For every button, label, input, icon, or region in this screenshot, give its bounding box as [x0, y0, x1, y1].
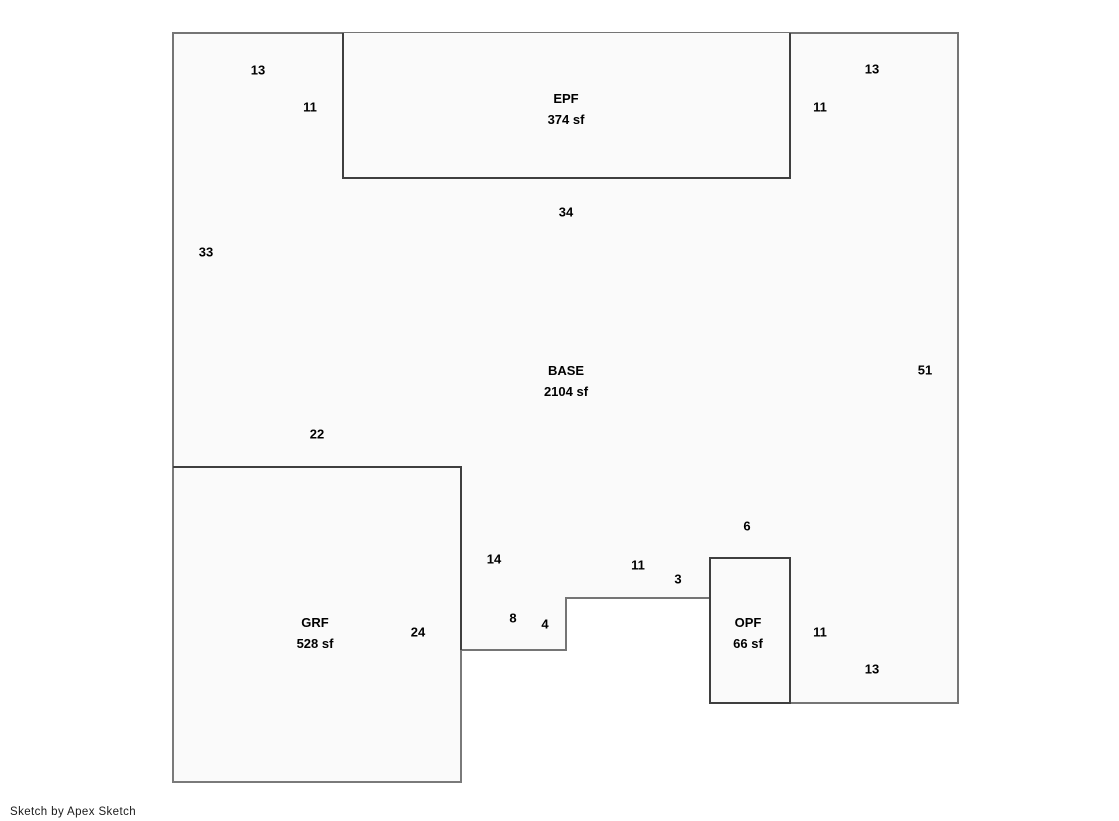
grf-shape — [173, 467, 461, 782]
sketch-credit: Sketch by Apex Sketch — [10, 806, 136, 818]
floor-plan-sketch: EPF 374 sf BASE 2104 sf GRF 528 sf OPF 6… — [0, 0, 1119, 821]
sketch-canvas — [0, 0, 1119, 821]
opf-shape — [710, 558, 790, 703]
epf-shape — [343, 33, 790, 178]
